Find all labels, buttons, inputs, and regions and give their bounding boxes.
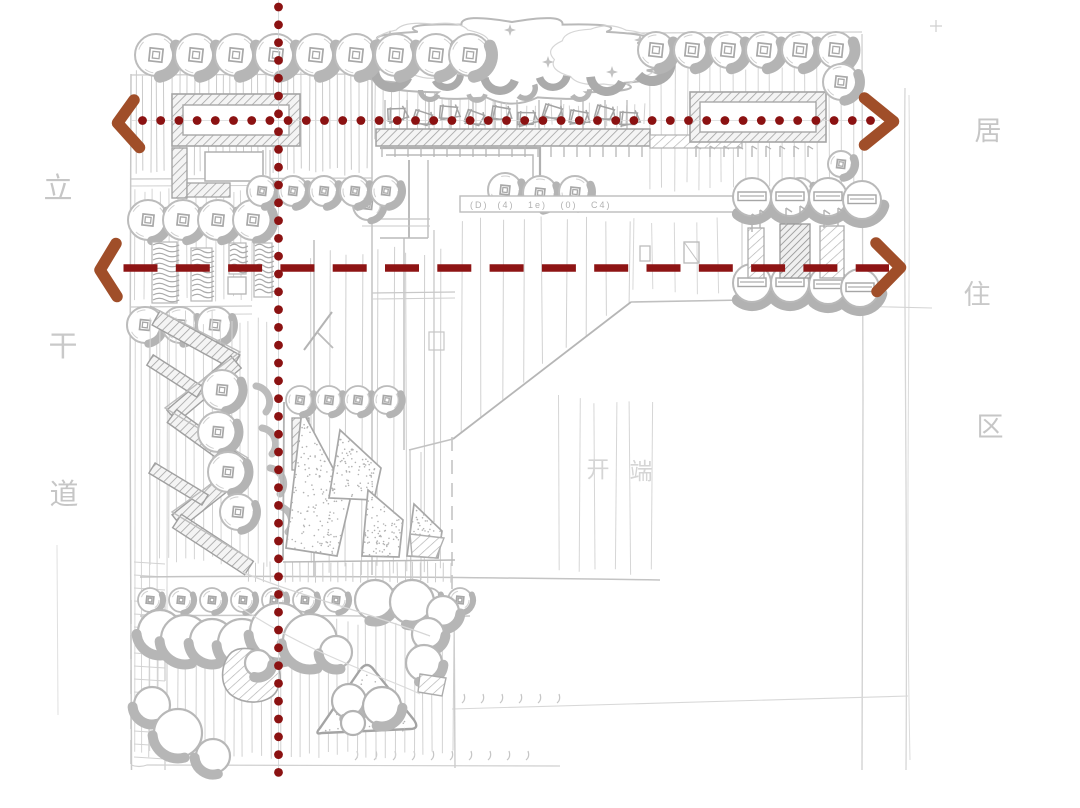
svg-text:区: 区 (977, 412, 1004, 442)
svg-text:居: 居 (975, 116, 1002, 146)
svg-text:立: 立 (43, 172, 72, 205)
svg-text:干: 干 (48, 331, 77, 363)
svg-text:开: 开 (587, 456, 610, 482)
svg-text:住: 住 (964, 280, 991, 310)
svg-text:道: 道 (49, 478, 78, 511)
svg-text:(D) (4) 1e) (0) C4): (D) (4) 1e) (0) C4) (470, 200, 612, 210)
svg-text:端: 端 (630, 458, 653, 484)
